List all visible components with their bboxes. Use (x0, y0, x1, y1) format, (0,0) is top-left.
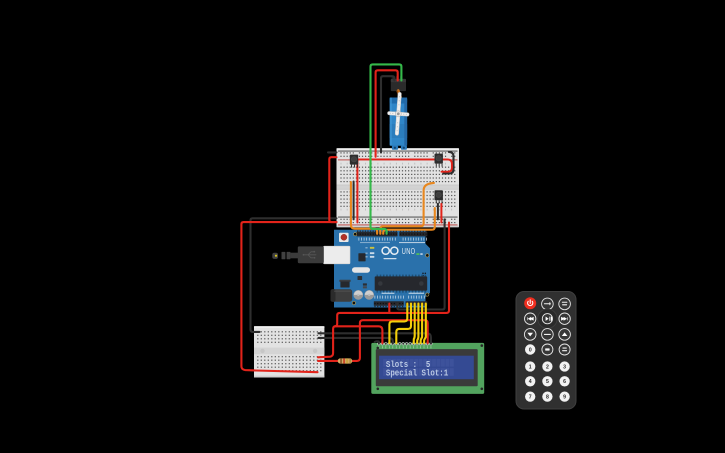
svg-text:7: 7 (529, 395, 532, 401)
svg-text:1: 1 (529, 364, 532, 370)
svg-text:9: 9 (563, 395, 566, 401)
svg-text:5: 5 (546, 379, 549, 385)
svg-text:UNO: UNO (402, 246, 416, 256)
svg-text:0: 0 (529, 348, 532, 354)
svg-text:2: 2 (546, 364, 549, 370)
svg-text:Special Slot:1: Special Slot:1 (386, 369, 448, 379)
svg-text:6: 6 (563, 379, 566, 385)
svg-text:3: 3 (563, 364, 566, 370)
svg-text:8: 8 (546, 395, 549, 401)
svg-text:4: 4 (529, 379, 532, 385)
